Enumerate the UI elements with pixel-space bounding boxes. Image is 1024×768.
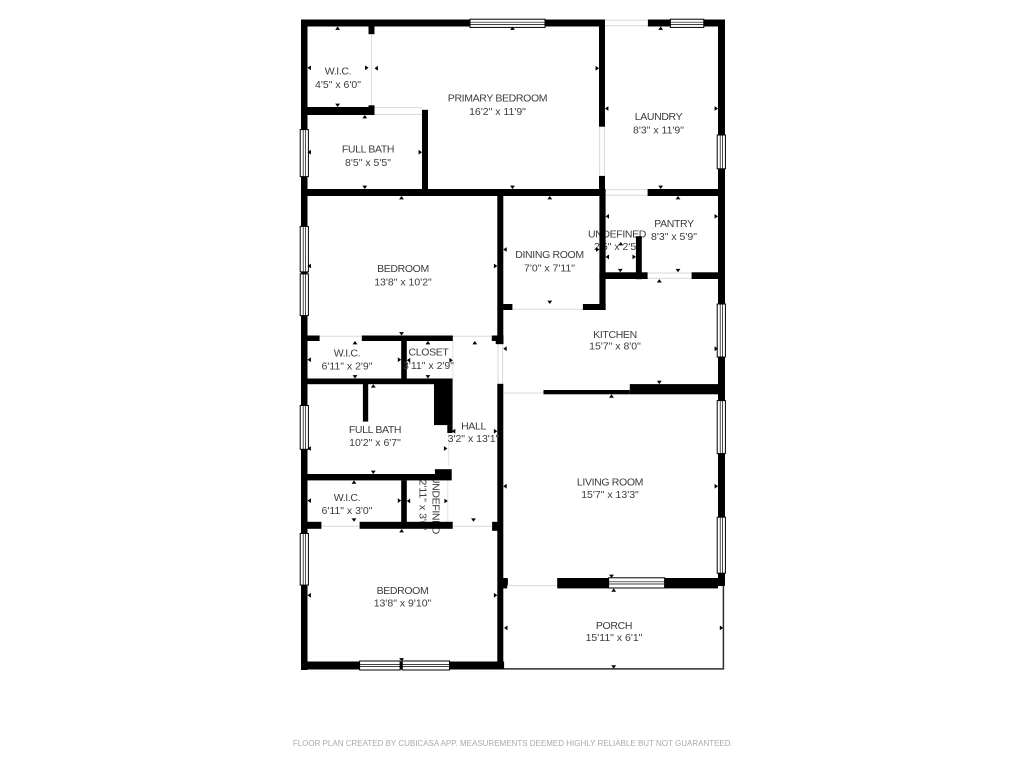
svg-text:8'3" x 5'9": 8'3" x 5'9"	[651, 231, 697, 243]
svg-text:FLOOR PLAN CREATED BY CUBICASA: FLOOR PLAN CREATED BY CUBICASA APP. MEAS…	[293, 739, 733, 748]
svg-text:FULL BATH: FULL BATH	[342, 143, 394, 155]
svg-text:PORCH: PORCH	[596, 620, 632, 632]
svg-text:W.I.C.: W.I.C.	[325, 65, 351, 77]
svg-text:10'2" x 6'7": 10'2" x 6'7"	[349, 437, 401, 449]
svg-text:13'8" x 9'10": 13'8" x 9'10"	[374, 598, 432, 610]
svg-text:7'0" x 7'11": 7'0" x 7'11"	[524, 262, 575, 274]
svg-text:4'5" x 6'0": 4'5" x 6'0"	[315, 79, 361, 91]
svg-text:8'5" x 5'5": 8'5" x 5'5"	[345, 157, 391, 169]
svg-text:6'11" x 3'0": 6'11" x 3'0"	[322, 505, 373, 517]
svg-text:8'3" x 11'9": 8'3" x 11'9"	[633, 124, 684, 136]
svg-text:LIVING ROOM: LIVING ROOM	[577, 476, 643, 488]
svg-text:KITCHEN: KITCHEN	[593, 329, 637, 341]
svg-text:DINING ROOM: DINING ROOM	[515, 249, 583, 261]
svg-text:FULL BATH: FULL BATH	[349, 424, 401, 436]
svg-text:W.I.C.: W.I.C.	[334, 492, 360, 504]
svg-text:15'7" x 8'0": 15'7" x 8'0"	[589, 341, 641, 353]
svg-text:6'11" x 2'9": 6'11" x 2'9"	[322, 361, 373, 373]
svg-text:15'11" x 6'1": 15'11" x 6'1"	[586, 632, 643, 644]
svg-text:LAUNDRY: LAUNDRY	[635, 111, 683, 123]
svg-text:3'2" x 13'1": 3'2" x 13'1"	[448, 433, 500, 445]
svg-text:CLOSET: CLOSET	[409, 347, 450, 359]
svg-text:13'8" x 10'2": 13'8" x 10'2"	[374, 276, 432, 288]
svg-text:HALL: HALL	[461, 420, 486, 432]
svg-text:BEDROOM: BEDROOM	[377, 585, 429, 597]
svg-text:3'11" x 2'9": 3'11" x 2'9"	[403, 360, 454, 372]
svg-text:W.I.C.: W.I.C.	[334, 347, 360, 359]
svg-text:16'2" x 11'9": 16'2" x 11'9"	[469, 106, 526, 118]
svg-text:15'7" x 13'3": 15'7" x 13'3"	[581, 489, 639, 501]
svg-text:BEDROOM: BEDROOM	[377, 263, 429, 275]
svg-text:PRIMARY BEDROOM: PRIMARY BEDROOM	[448, 92, 547, 104]
svg-text:PANTRY: PANTRY	[654, 218, 694, 230]
